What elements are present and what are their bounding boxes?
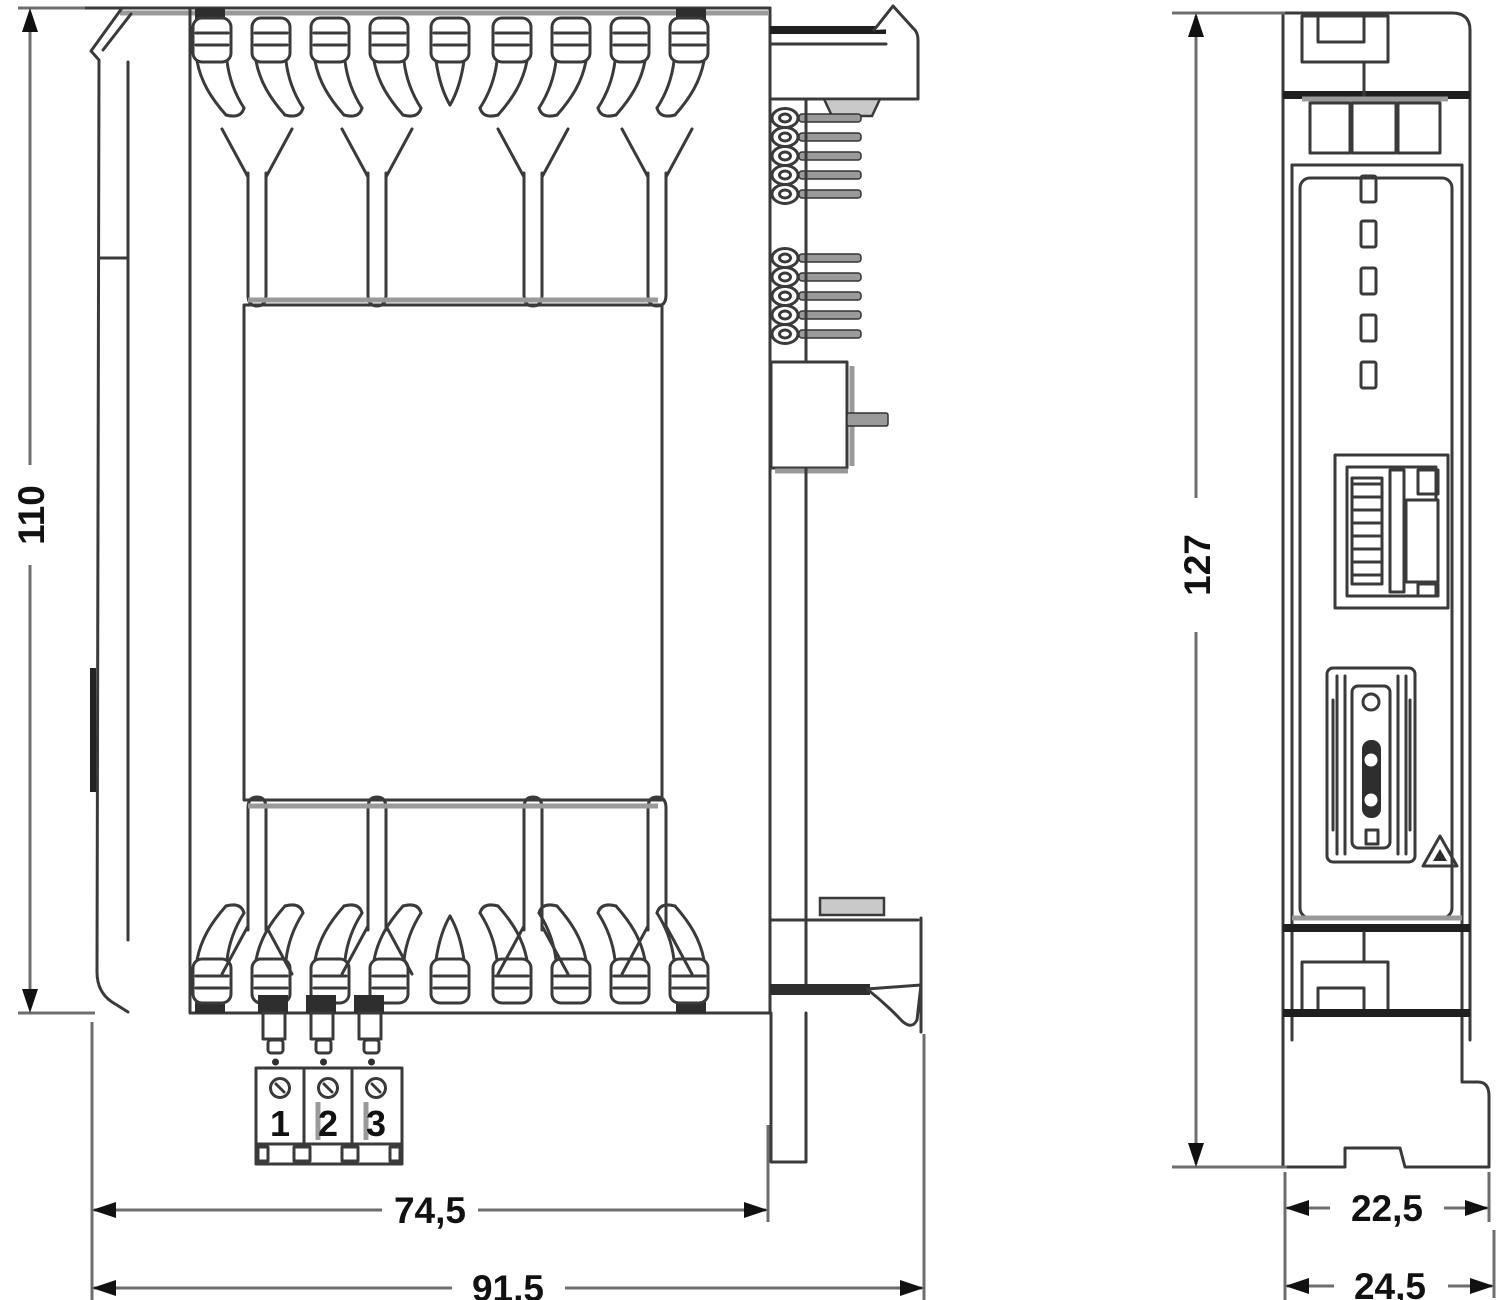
terminal-label-1: 1 [270,1103,290,1144]
vent-slot-row-top [193,8,708,116]
dim-label-110: 110 [11,485,52,545]
led-indicator [1361,362,1376,388]
dimension-front-total-depth: 24,5 [1285,1230,1494,1300]
dim-label-91-5: 91,5 [472,1268,544,1300]
led-indicator [1361,268,1376,294]
led-indicator [1361,176,1376,202]
rear-connector-block [771,362,888,471]
dim-label-22-5: 22,5 [1351,1188,1423,1229]
front-terminal-row [1302,99,1448,153]
front-view: 127 22,5 24,5 [1172,13,1494,1300]
dim-label-74-5: 74,5 [394,1190,466,1231]
label-plate [244,300,662,806]
din-clip-bottom-hook [867,985,921,1025]
pin-header-upper [772,109,861,204]
dimension-front-height: 127 [1172,13,1287,1167]
dim-label-24-5: 24,5 [1354,1266,1426,1300]
cooling-channels-bottom [222,797,692,974]
front-panel [1292,165,1462,1040]
dimension-side-body-width: 74,5 [92,1022,768,1300]
ethernet-port [1335,455,1448,608]
side-view: 1 2 3 110 74,5 [11,6,924,1300]
dimension-side-height: 110 [11,8,95,1013]
led-column [1361,176,1376,388]
front-din-clip-top [1283,16,1470,95]
terminal-label-2: 2 [318,1103,338,1144]
led-indicator [1361,315,1376,341]
terminal-block: 1 2 3 [256,995,402,1164]
dim-label-127: 127 [1177,534,1218,596]
dimension-side-total-width: 91,5 [92,1034,924,1300]
drawing-canvas: 1 2 3 110 74,5 [0,0,1500,1300]
din-clip-bottom [770,898,921,1162]
card-slot-connector [1327,668,1415,862]
din-clip-top [770,6,918,116]
pin-header-lower [772,249,861,344]
front-din-clip-bottom [1283,918,1489,1167]
din-clip-top-hook [874,6,913,30]
terminal-label-3: 3 [366,1103,386,1144]
cooling-channels-top [222,129,692,306]
technical-drawing: 1 2 3 110 74,5 [0,0,1500,1300]
led-indicator [1361,221,1376,247]
side-left-flange [91,8,131,1012]
din-foot [1283,1040,1489,1167]
